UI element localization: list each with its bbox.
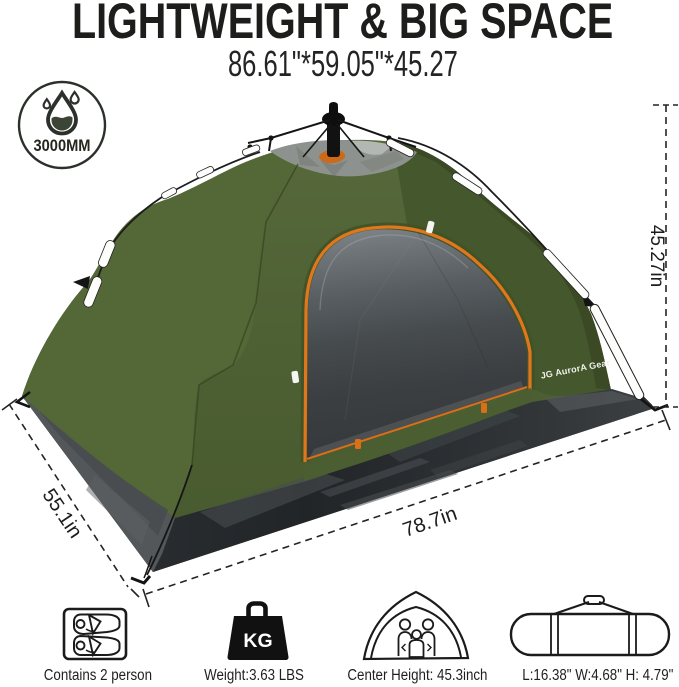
- svg-text:KG: KG: [243, 630, 272, 652]
